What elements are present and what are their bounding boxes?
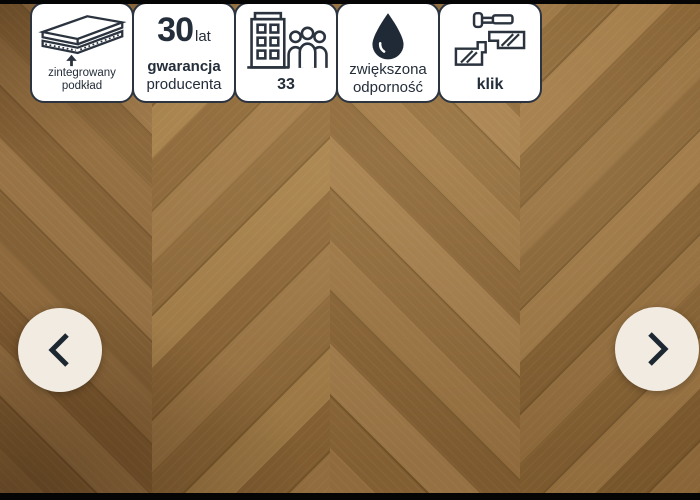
badge-caption-line: producenta xyxy=(146,76,221,94)
carousel-next-button[interactable] xyxy=(615,307,699,391)
badge-caption: gwarancja producenta xyxy=(146,58,221,93)
badge-caption-line: zintegrowany xyxy=(48,67,116,80)
badge-caption-line: podkład xyxy=(48,80,116,93)
building-people-icon xyxy=(240,11,332,73)
badge-caption: zintegrowany podkład xyxy=(48,67,116,93)
badge-warranty: 30 lat gwarancja producenta xyxy=(132,2,236,103)
badge-caption: zwiększona odporność xyxy=(349,61,427,96)
badge-caption-line: odporność xyxy=(349,79,427,97)
click-label: klik xyxy=(477,76,504,93)
letterbox-bottom xyxy=(0,493,700,500)
usage-class-value: 33 xyxy=(277,76,295,93)
badge-integrated-underlay: zintegrowany podkład xyxy=(30,2,134,103)
chevron-right-icon xyxy=(640,330,674,368)
carousel-prev-button[interactable] xyxy=(18,308,102,392)
water-drop-icon xyxy=(359,11,417,61)
badge-caption-line: gwarancja xyxy=(146,58,221,76)
badge-usage-class: 33 xyxy=(234,2,338,103)
badge-increased-resistance: zwiększona odporność xyxy=(336,2,440,103)
warranty-years: 30 xyxy=(157,13,193,47)
wood-plank-column xyxy=(520,0,700,500)
badge-click-system: klik xyxy=(438,2,542,103)
warranty-unit: lat xyxy=(195,28,211,45)
badge-caption-line: zwiększona xyxy=(349,61,427,79)
chevron-left-icon xyxy=(43,331,77,369)
warranty-value: 30 lat xyxy=(157,13,211,47)
letterbox-top xyxy=(0,0,700,4)
integrated-underlay-icon xyxy=(36,11,128,67)
product-image-carousel: zintegrowany podkład 30 lat gwarancja pr… xyxy=(0,0,700,500)
click-system-icon xyxy=(446,11,534,69)
feature-badges-strip: zintegrowany podkład 30 lat gwarancja pr… xyxy=(30,2,542,103)
